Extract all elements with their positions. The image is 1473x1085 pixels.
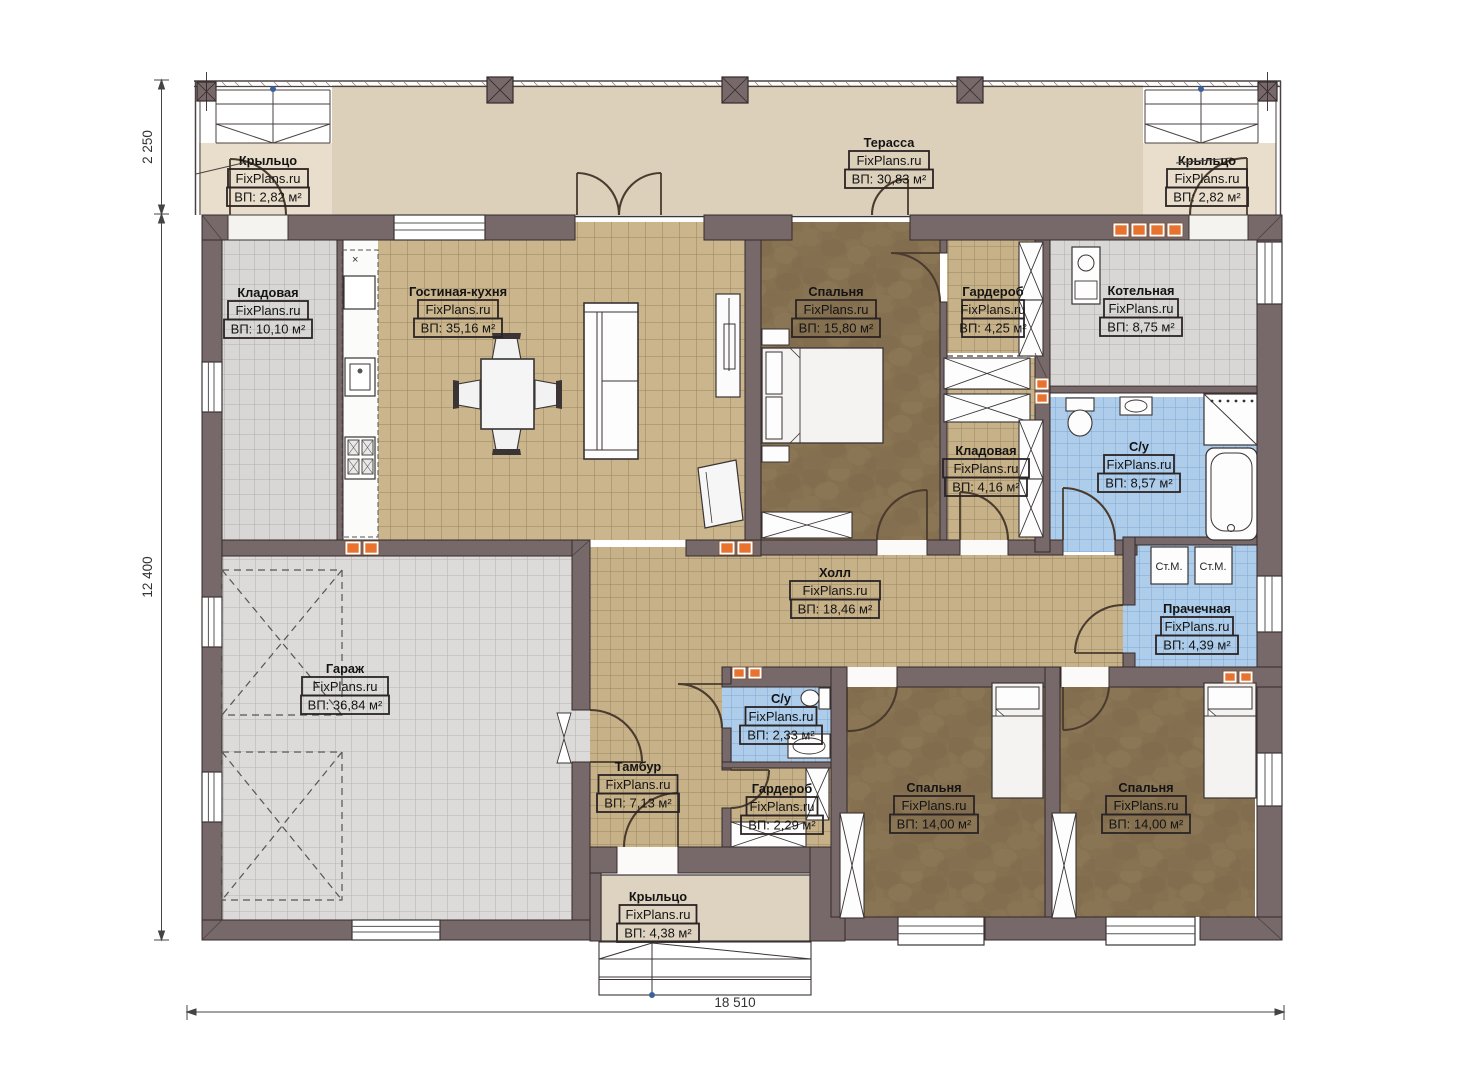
svg-text:ВП: 30,83 м²: ВП: 30,83 м² bbox=[852, 172, 927, 187]
svg-text:FixPlans.ru: FixPlans.ru bbox=[235, 303, 300, 318]
svg-text:FixPlans.ru: FixPlans.ru bbox=[960, 302, 1025, 317]
svg-text:Холл: Холл bbox=[819, 565, 851, 580]
svg-text:FixPlans.ru: FixPlans.ru bbox=[901, 798, 966, 813]
svg-text:ВП: 14,00 м²: ВП: 14,00 м² bbox=[1109, 817, 1184, 832]
svg-text:Гардероб: Гардероб bbox=[962, 284, 1023, 299]
svg-text:С/у: С/у bbox=[1129, 439, 1150, 454]
svg-text:12 400: 12 400 bbox=[140, 556, 155, 597]
svg-text:Ст.М.: Ст.М. bbox=[1155, 561, 1182, 573]
svg-text:ВП: 2,82 м²: ВП: 2,82 м² bbox=[234, 190, 302, 205]
svg-text:ВП: 8,75 м²: ВП: 8,75 м² bbox=[1107, 320, 1175, 335]
svg-text:ВП: 4,25 м²: ВП: 4,25 м² bbox=[959, 321, 1027, 336]
svg-text:FixPlans.ru: FixPlans.ru bbox=[1164, 619, 1229, 634]
svg-text:Спальня: Спальня bbox=[1118, 780, 1173, 795]
svg-text:ВП: 15,80 м²: ВП: 15,80 м² bbox=[799, 321, 874, 336]
svg-text:С/у: С/у bbox=[771, 691, 792, 706]
svg-text:FixPlans.ru: FixPlans.ru bbox=[605, 777, 670, 792]
svg-text:ВП: 2,82 м²: ВП: 2,82 м² bbox=[1173, 190, 1241, 205]
svg-text:FixPlans.ru: FixPlans.ru bbox=[1113, 798, 1178, 813]
svg-text:ВП: 18,46 м²: ВП: 18,46 м² bbox=[798, 602, 873, 617]
svg-text:FixPlans.ru: FixPlans.ru bbox=[312, 679, 377, 694]
svg-text:FixPlans.ru: FixPlans.ru bbox=[803, 302, 868, 317]
svg-text:ВП: 10,10 м²: ВП: 10,10 м² bbox=[231, 322, 306, 337]
svg-text:FixPlans.ru: FixPlans.ru bbox=[802, 583, 867, 598]
svg-text:FixPlans.ru: FixPlans.ru bbox=[425, 302, 490, 317]
svg-text:FixPlans.ru: FixPlans.ru bbox=[856, 153, 921, 168]
svg-text:Ст.М.: Ст.М. bbox=[1199, 561, 1226, 573]
svg-text:ВП: 36,84 м²: ВП: 36,84 м² bbox=[308, 698, 383, 713]
svg-text:FixPlans.ru: FixPlans.ru bbox=[1106, 457, 1171, 472]
svg-text:Гараж: Гараж bbox=[326, 661, 365, 676]
svg-text:Гардероб: Гардероб bbox=[752, 781, 813, 796]
svg-text:ВП: 4,16 м²: ВП: 4,16 м² bbox=[952, 480, 1020, 495]
svg-text:ВП: 7,13 м²: ВП: 7,13 м² bbox=[604, 796, 672, 811]
svg-text:FixPlans.ru: FixPlans.ru bbox=[749, 799, 814, 814]
svg-text:ВП: 4,38 м²: ВП: 4,38 м² bbox=[624, 926, 692, 941]
svg-text:Котельная: Котельная bbox=[1107, 283, 1174, 298]
svg-text:18 510: 18 510 bbox=[714, 995, 755, 1010]
svg-text:FixPlans.ru: FixPlans.ru bbox=[953, 461, 1018, 476]
svg-text:Кладовая: Кладовая bbox=[955, 443, 1016, 458]
svg-text:ВП: 8,57 м²: ВП: 8,57 м² bbox=[1105, 476, 1173, 491]
svg-text:FixPlans.ru: FixPlans.ru bbox=[625, 907, 690, 922]
svg-text:2 250: 2 250 bbox=[140, 130, 155, 164]
svg-text:Тамбур: Тамбур bbox=[615, 759, 662, 774]
svg-text:FixPlans.ru: FixPlans.ru bbox=[235, 171, 300, 186]
svg-text:FixPlans.ru: FixPlans.ru bbox=[748, 709, 813, 724]
svg-text:FixPlans.ru: FixPlans.ru bbox=[1108, 301, 1173, 316]
svg-text:ВП: 2,29 м²: ВП: 2,29 м² bbox=[748, 818, 816, 833]
svg-text:ВП: 14,00 м²: ВП: 14,00 м² bbox=[897, 817, 972, 832]
svg-text:Спальня: Спальня bbox=[906, 780, 961, 795]
svg-text:Крыльцо: Крыльцо bbox=[239, 153, 297, 168]
svg-text:Кладовая: Кладовая bbox=[237, 285, 298, 300]
svg-text:Терасса: Терасса bbox=[864, 135, 916, 150]
svg-text:Спальня: Спальня bbox=[808, 284, 863, 299]
svg-text:ВП: 2,33 м²: ВП: 2,33 м² bbox=[747, 728, 815, 743]
svg-text:Гостиная-кухня: Гостиная-кухня bbox=[409, 284, 507, 299]
svg-text:ВП: 4,39 м²: ВП: 4,39 м² bbox=[1163, 638, 1231, 653]
svg-text:ВП: 35,16 м²: ВП: 35,16 м² bbox=[421, 321, 496, 336]
svg-text:Прачечная: Прачечная bbox=[1163, 601, 1231, 616]
svg-text:FixPlans.ru: FixPlans.ru bbox=[1174, 171, 1239, 186]
svg-text:×: × bbox=[352, 254, 358, 266]
svg-text:Крыльцо: Крыльцо bbox=[629, 889, 687, 904]
